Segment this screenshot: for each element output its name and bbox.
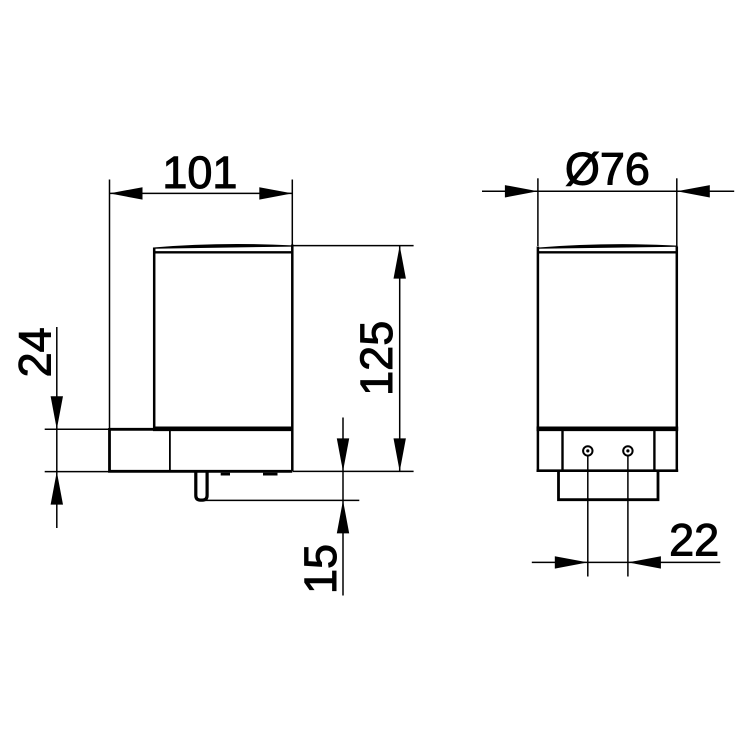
svg-text:15: 15 (295, 544, 346, 594)
svg-text:24: 24 (10, 327, 61, 377)
svg-text:101: 101 (162, 147, 237, 198)
svg-text:22: 22 (669, 514, 719, 565)
svg-text:125: 125 (351, 321, 402, 396)
svg-text:Ø76: Ø76 (565, 144, 650, 195)
